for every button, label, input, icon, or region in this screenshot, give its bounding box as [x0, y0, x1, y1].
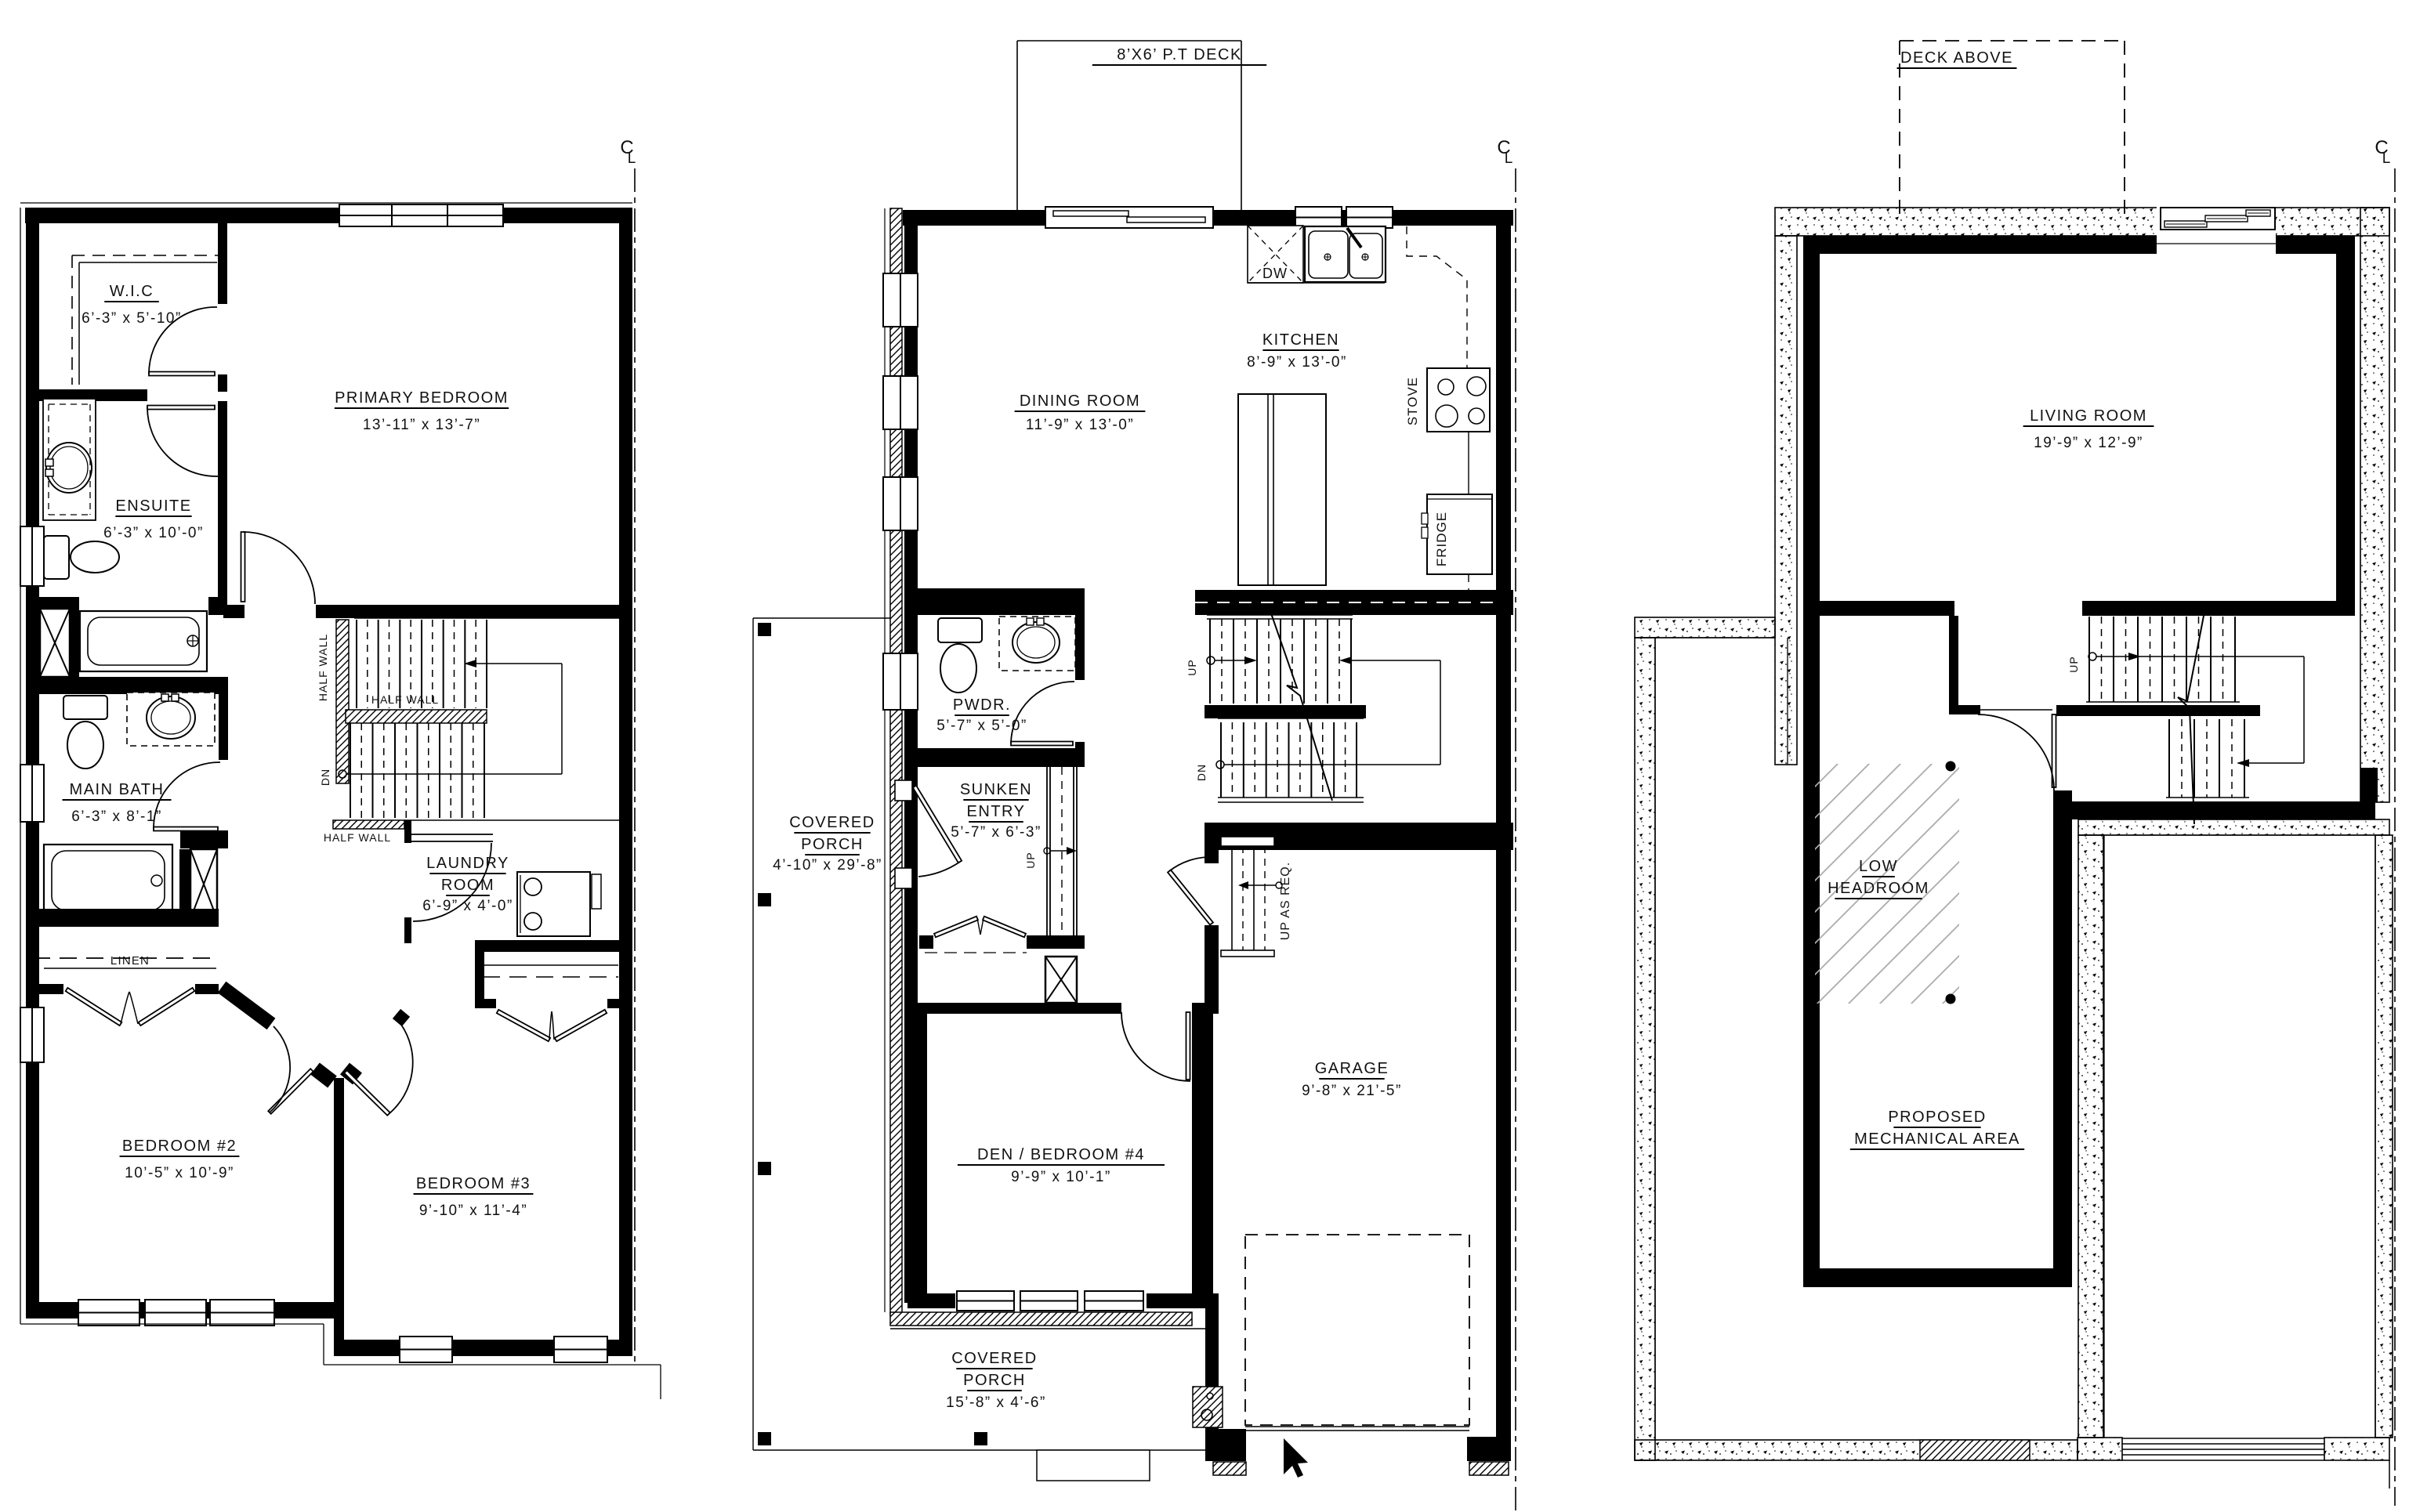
svg-text:KITCHEN: KITCHEN — [1262, 331, 1339, 349]
svg-text:4’-10” x 29’-8”: 4’-10” x 29’-8” — [773, 857, 882, 874]
svg-text:MAIN BATH: MAIN BATH — [70, 781, 165, 798]
svg-text:ROOM: ROOM — [441, 877, 494, 894]
svg-text:STOVE: STOVE — [1405, 377, 1420, 425]
svg-text:9’-8” x 21’-5”: 9’-8” x 21’-5” — [1302, 1083, 1402, 1099]
svg-text:FRIDGE: FRIDGE — [1434, 512, 1449, 566]
svg-text:6’-3” x 5’-10”: 6’-3” x 5’-10” — [82, 310, 182, 327]
svg-text:COVERED: COVERED — [789, 814, 875, 831]
svg-text:6’-9” x 4’-0”: 6’-9” x 4’-0” — [422, 898, 513, 914]
svg-text:19’-9” x 12’-9”: 19’-9” x 12’-9” — [2034, 435, 2143, 451]
svg-text:10’-5” x 10’-9”: 10’-5” x 10’-9” — [125, 1165, 234, 1181]
svg-text:DECK ABOVE: DECK ABOVE — [1900, 49, 2013, 67]
svg-text:DN: DN — [319, 769, 331, 786]
svg-text:5’-7” x 6’-3”: 5’-7” x 6’-3” — [951, 824, 1041, 841]
svg-text:15’-8” x 4’-6”: 15’-8” x 4’-6” — [946, 1394, 1046, 1411]
svg-text:UP AS REQ.: UP AS REQ. — [1279, 862, 1292, 940]
svg-text:PROPOSED: PROPOSED — [1888, 1109, 1986, 1126]
svg-text:L: L — [2382, 150, 2391, 167]
svg-text:BEDROOM #2: BEDROOM #2 — [122, 1138, 237, 1155]
svg-text:MECHANICAL AREA: MECHANICAL AREA — [1854, 1130, 2020, 1148]
svg-text:HALF WALL: HALF WALL — [371, 693, 439, 706]
svg-text:UP: UP — [1186, 659, 1198, 675]
svg-text:HALF WALL: HALF WALL — [317, 634, 329, 701]
svg-text:UP: UP — [1024, 852, 1037, 868]
svg-text:PORCH: PORCH — [963, 1372, 1026, 1389]
svg-text:11’-9” x 13’-0”: 11’-9” x 13’-0” — [1026, 417, 1134, 433]
svg-text:GARAGE: GARAGE — [1315, 1060, 1389, 1077]
svg-text:9’-9” x 10’-1”: 9’-9” x 10’-1” — [1011, 1169, 1111, 1185]
svg-text:DINING ROOM: DINING ROOM — [1020, 392, 1140, 410]
svg-text:DEN / BEDROOM #4: DEN / BEDROOM #4 — [977, 1146, 1145, 1163]
svg-text:13’-11” x 13’-7”: 13’-11” x 13’-7” — [363, 417, 480, 433]
svg-text:PWDR.: PWDR. — [953, 696, 1011, 714]
svg-text:LOW: LOW — [1859, 858, 1898, 875]
svg-text:6’-3” x 8’-1”: 6’-3” x 8’-1” — [71, 808, 162, 825]
svg-text:9’-10” x 11’-4”: 9’-10” x 11’-4” — [419, 1203, 527, 1219]
svg-text:DN: DN — [1195, 764, 1208, 781]
svg-text:COVERED: COVERED — [951, 1350, 1037, 1367]
svg-text:W.I.C: W.I.C — [110, 283, 154, 300]
svg-text:PRIMARY BEDROOM: PRIMARY BEDROOM — [335, 389, 509, 407]
svg-text:LIVING ROOM: LIVING ROOM — [2030, 407, 2147, 425]
svg-text:UP: UP — [2067, 656, 2080, 672]
svg-text:ENTRY: ENTRY — [967, 803, 1026, 820]
svg-text:8’-9” x 13’-0”: 8’-9” x 13’-0” — [1247, 354, 1347, 371]
svg-text:L: L — [1505, 150, 1513, 167]
svg-text:DW: DW — [1262, 266, 1288, 281]
svg-text:L: L — [628, 150, 636, 167]
svg-text:PORCH: PORCH — [801, 836, 864, 853]
svg-text:LINEN: LINEN — [110, 954, 150, 968]
svg-text:8’X6’ P.T DECK: 8’X6’ P.T DECK — [1117, 46, 1242, 63]
svg-text:BEDROOM #3: BEDROOM #3 — [416, 1175, 531, 1192]
svg-text:LAUNDRY: LAUNDRY — [426, 855, 509, 872]
svg-text:SUNKEN: SUNKEN — [960, 781, 1032, 798]
svg-text:HALF WALL: HALF WALL — [324, 831, 391, 844]
svg-text:6’-3” x 10’-0”: 6’-3” x 10’-0” — [103, 525, 204, 541]
svg-text:ENSUITE: ENSUITE — [115, 497, 191, 515]
svg-text:5’-7” x 5’-0”: 5’-7” x 5’-0” — [936, 718, 1027, 734]
svg-text:HEADROOM: HEADROOM — [1828, 880, 1929, 897]
